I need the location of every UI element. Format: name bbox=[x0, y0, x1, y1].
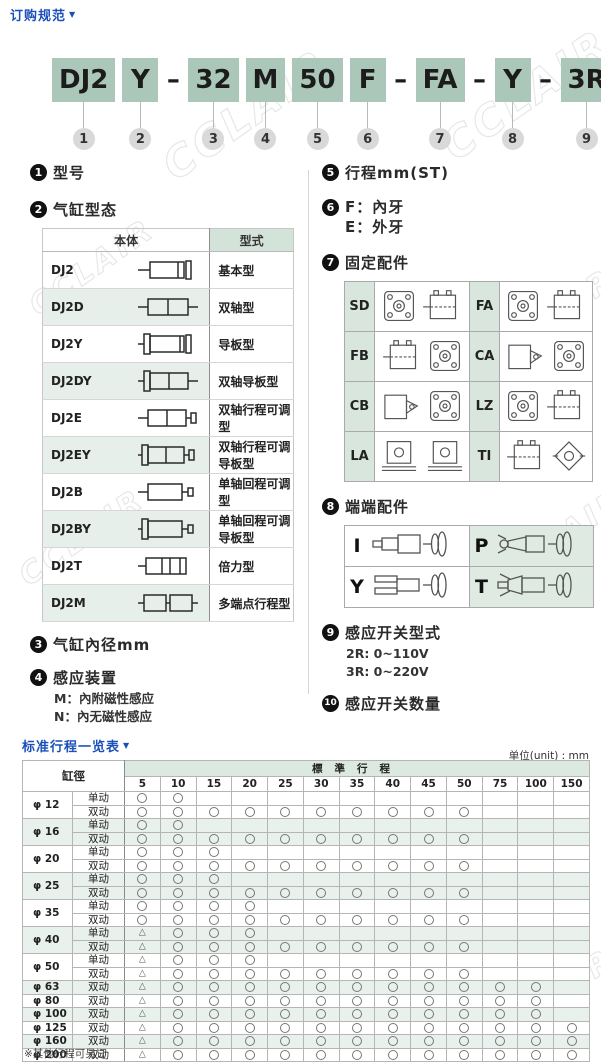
section-4-sensor-device: 4 感应装置 bbox=[30, 667, 304, 688]
stroke-availability-cell bbox=[160, 886, 196, 900]
stroke-availability-cell bbox=[268, 967, 304, 981]
stroke-availability-cell bbox=[411, 1008, 447, 1022]
segment-connector-line bbox=[317, 102, 318, 128]
type-table-row: DJ2T倍力型 bbox=[43, 548, 294, 585]
segment-number-circle: 8 bbox=[502, 128, 524, 150]
stroke-column-header: 20 bbox=[232, 777, 268, 792]
type-table-row: DJ2B单轴回程可调型 bbox=[43, 474, 294, 511]
stroke-availability-cell bbox=[518, 1048, 554, 1062]
section-4-badge: 4 bbox=[30, 669, 47, 686]
stroke-availability-cell bbox=[196, 1048, 232, 1062]
rod-end-code: T bbox=[474, 576, 490, 598]
mount-drawing bbox=[375, 331, 470, 381]
stroke-availability-cell bbox=[196, 859, 232, 873]
available-circle-mark bbox=[531, 1009, 541, 1019]
stroke-availability-cell bbox=[303, 994, 339, 1008]
model-code-segment: Y8 bbox=[495, 58, 531, 150]
stroke-availability-cell bbox=[411, 1021, 447, 1035]
stroke-availability-cell bbox=[268, 819, 304, 833]
stroke-table-row: 双动 bbox=[23, 832, 590, 846]
model-code: DJ21Y2–323M4505F6–FA7–Y8–3R9210 bbox=[52, 58, 601, 150]
model-code-segment: Y2 bbox=[122, 58, 158, 150]
available-circle-mark bbox=[173, 861, 183, 871]
stroke-availability-cell bbox=[518, 954, 554, 968]
stroke-availability-cell bbox=[160, 994, 196, 1008]
available-circle-mark bbox=[209, 1009, 219, 1019]
stroke-availability-cell bbox=[446, 967, 482, 981]
action-type-cell: 双动 bbox=[73, 967, 125, 981]
stroke-availability-cell bbox=[303, 954, 339, 968]
stroke-availability-cell bbox=[125, 886, 161, 900]
stroke-column-header: 10 bbox=[160, 777, 196, 792]
available-circle-mark bbox=[173, 807, 183, 817]
switch-type-3r: 3R: 0~220V bbox=[346, 663, 594, 681]
stroke-availability-cell bbox=[160, 1035, 196, 1049]
cylinder-pictogram-icon bbox=[126, 363, 210, 400]
available-circle-mark bbox=[209, 915, 219, 925]
rod-end-code: Y bbox=[349, 576, 365, 598]
available-circle-mark bbox=[424, 982, 434, 992]
stroke-availability-cell bbox=[268, 927, 304, 941]
available-circle-mark bbox=[424, 888, 434, 898]
rod-end-item: P bbox=[474, 529, 590, 563]
mounting-grid-row: FBCA bbox=[345, 331, 593, 381]
stroke-availability-cell bbox=[554, 1021, 590, 1035]
stroke-availability-cell bbox=[518, 927, 554, 941]
stroke-availability-cell bbox=[125, 900, 161, 914]
stroke-availability-cell bbox=[196, 1008, 232, 1022]
mount-code-label: LA bbox=[345, 431, 375, 481]
rod-end-drawing bbox=[371, 570, 455, 604]
available-circle-mark bbox=[245, 901, 255, 911]
stroke-availability-cell bbox=[339, 1008, 375, 1022]
stroke-availability-cell bbox=[232, 792, 268, 806]
available-circle-mark bbox=[280, 888, 290, 898]
rod-end-item: T bbox=[474, 570, 590, 604]
action-type-cell: 单动 bbox=[73, 954, 125, 968]
stroke-table-row: φ 100双动△ bbox=[23, 1008, 590, 1022]
type-table-row: DJ2DY双轴导板型 bbox=[43, 363, 294, 400]
cylinder-pictogram-icon bbox=[126, 252, 210, 289]
section-8-rod-end: 8 端端配件 bbox=[322, 496, 594, 517]
available-circle-mark bbox=[495, 996, 505, 1006]
available-circle-mark bbox=[173, 1023, 183, 1033]
stroke-availability-cell bbox=[303, 940, 339, 954]
available-circle-mark bbox=[280, 807, 290, 817]
stroke-availability-cell bbox=[446, 832, 482, 846]
stroke-availability-cell bbox=[446, 805, 482, 819]
stroke-availability-cell bbox=[339, 819, 375, 833]
stroke-availability-cell: △ bbox=[125, 927, 161, 941]
model-code-box: Y bbox=[122, 58, 158, 102]
stroke-availability-cell bbox=[411, 1048, 447, 1062]
optional-triangle-mark: △ bbox=[139, 968, 146, 978]
available-circle-mark bbox=[531, 1036, 541, 1046]
stroke-availability-cell bbox=[232, 981, 268, 995]
stroke-availability-cell bbox=[554, 913, 590, 927]
available-circle-mark bbox=[280, 969, 290, 979]
available-circle-mark bbox=[173, 928, 183, 938]
stroke-availability-cell bbox=[196, 805, 232, 819]
available-circle-mark bbox=[424, 1050, 434, 1060]
available-circle-mark bbox=[137, 820, 147, 830]
stroke-availability-cell bbox=[482, 846, 518, 860]
rod-end-item: I bbox=[349, 529, 465, 563]
action-type-cell: 双动 bbox=[73, 1008, 125, 1022]
stroke-availability-cell bbox=[160, 846, 196, 860]
stroke-availability-cell bbox=[339, 873, 375, 887]
mount-code-label: LZ bbox=[470, 381, 500, 431]
optional-triangle-mark: △ bbox=[139, 1036, 146, 1046]
stroke-table-row: φ 125双动△ bbox=[23, 1021, 590, 1035]
stroke-availability-cell bbox=[375, 1021, 411, 1035]
stroke-availability-cell bbox=[303, 792, 339, 806]
stroke-availability-cell bbox=[518, 994, 554, 1008]
stroke-availability-cell bbox=[303, 805, 339, 819]
stroke-availability-cell bbox=[160, 927, 196, 941]
stroke-availability-cell bbox=[554, 873, 590, 887]
stroke-availability-cell bbox=[196, 900, 232, 914]
stroke-availability-cell bbox=[518, 792, 554, 806]
stroke-availability-cell bbox=[411, 900, 447, 914]
action-type-cell: 双动 bbox=[73, 940, 125, 954]
stroke-availability-cell bbox=[232, 832, 268, 846]
available-circle-mark bbox=[280, 1009, 290, 1019]
model-code-box: Y bbox=[495, 58, 531, 102]
cylinder-code: DJ2Y bbox=[43, 326, 127, 363]
type-table-row: DJ2BY单轴回程可调导板型 bbox=[43, 511, 294, 548]
rod-end-grid: IPYT bbox=[344, 525, 594, 608]
available-circle-mark bbox=[316, 915, 326, 925]
stroke-availability-cell bbox=[125, 819, 161, 833]
stroke-availability-cell bbox=[446, 1048, 482, 1062]
stroke-availability-cell bbox=[482, 1048, 518, 1062]
stroke-availability-cell bbox=[196, 994, 232, 1008]
section-3-bore: 3 气缸內径mm bbox=[30, 634, 304, 655]
stroke-availability-cell bbox=[196, 819, 232, 833]
section-9-badge: 9 bbox=[322, 624, 339, 641]
available-circle-mark bbox=[209, 942, 219, 952]
available-circle-mark bbox=[388, 996, 398, 1006]
type-table-row: DJ2E双轴行程可调型 bbox=[43, 400, 294, 437]
stroke-table-row: 双动 bbox=[23, 805, 590, 819]
stroke-availability-cell bbox=[160, 805, 196, 819]
action-type-cell: 双动 bbox=[73, 994, 125, 1008]
mount-drawing bbox=[375, 431, 470, 481]
ordering-spec-page: CCLAIR CCLAIR CCLAIR CCLAIR CCLAIR CCLAI… bbox=[0, 0, 601, 1064]
cylinder-pictogram-icon bbox=[126, 400, 210, 437]
available-circle-mark bbox=[280, 1036, 290, 1046]
stroke-availability-cell bbox=[232, 846, 268, 860]
cylinder-code: DJ2DY bbox=[43, 363, 127, 400]
available-circle-mark bbox=[352, 996, 362, 1006]
available-circle-mark bbox=[173, 834, 183, 844]
bore-size-cell: φ 100 bbox=[23, 1008, 73, 1022]
stroke-availability-cell bbox=[268, 886, 304, 900]
cylinder-code: DJ2M bbox=[43, 585, 127, 622]
stroke-availability-cell bbox=[339, 967, 375, 981]
stroke-availability-cell bbox=[196, 832, 232, 846]
segment-connector-line bbox=[367, 102, 368, 128]
available-circle-mark bbox=[245, 982, 255, 992]
available-circle-mark bbox=[388, 1009, 398, 1019]
stroke-availability-cell bbox=[518, 1035, 554, 1049]
cylinder-pictogram-icon bbox=[126, 585, 210, 622]
stroke-availability-cell bbox=[446, 846, 482, 860]
mount-drawing bbox=[375, 281, 470, 331]
available-circle-mark bbox=[173, 888, 183, 898]
stroke-availability-cell bbox=[303, 1035, 339, 1049]
stroke-availability-cell bbox=[554, 1035, 590, 1049]
sensor-option-n: N：內无磁性感应 bbox=[54, 708, 304, 726]
stroke-availability-cell bbox=[303, 846, 339, 860]
available-circle-mark bbox=[137, 861, 147, 871]
available-circle-mark bbox=[245, 834, 255, 844]
stroke-availability-cell bbox=[303, 1048, 339, 1062]
available-circle-mark bbox=[388, 982, 398, 992]
segment-connector-line bbox=[265, 102, 266, 128]
stroke-availability-cell bbox=[375, 1035, 411, 1049]
model-code-box: F bbox=[350, 58, 386, 102]
bore-size-cell: φ 20 bbox=[23, 846, 73, 873]
mount-code-label: FB bbox=[345, 331, 375, 381]
stroke-availability-cell bbox=[339, 832, 375, 846]
action-type-cell: 双动 bbox=[73, 832, 125, 846]
stroke-availability-cell bbox=[554, 1008, 590, 1022]
stroke-availability-cell bbox=[518, 900, 554, 914]
stroke-table-row: φ 35单动 bbox=[23, 900, 590, 914]
stroke-availability-cell bbox=[518, 819, 554, 833]
stroke-table-title[interactable]: 标准行程一览表 ▼ bbox=[22, 736, 130, 755]
available-circle-mark bbox=[245, 996, 255, 1006]
stroke-availability-cell bbox=[375, 873, 411, 887]
stroke-availability-cell bbox=[232, 1035, 268, 1049]
cylinder-type-name: 多端点行程型 bbox=[210, 585, 294, 622]
cylinder-code: DJ2B bbox=[43, 474, 127, 511]
mount-drawing bbox=[500, 281, 593, 331]
segment-number-circle: 7 bbox=[429, 128, 451, 150]
stroke-table-row: φ 200双动△ bbox=[23, 1048, 590, 1062]
stroke-availability-cell bbox=[375, 927, 411, 941]
stroke-availability-cell bbox=[375, 886, 411, 900]
available-circle-mark bbox=[173, 955, 183, 965]
available-circle-mark bbox=[388, 942, 398, 952]
stroke-availability-cell bbox=[268, 981, 304, 995]
available-circle-mark bbox=[352, 861, 362, 871]
available-circle-mark bbox=[316, 834, 326, 844]
mount-code-label: CB bbox=[345, 381, 375, 431]
stroke-availability-cell bbox=[482, 1008, 518, 1022]
stroke-availability-cell bbox=[518, 886, 554, 900]
stroke-availability-cell bbox=[232, 819, 268, 833]
available-circle-mark bbox=[209, 955, 219, 965]
stroke-availability-cell bbox=[518, 1008, 554, 1022]
stroke-availability-cell bbox=[446, 981, 482, 995]
stroke-availability-cell bbox=[303, 913, 339, 927]
available-circle-mark bbox=[245, 1036, 255, 1046]
optional-triangle-mark: △ bbox=[139, 928, 146, 938]
stroke-column-header: 150 bbox=[554, 777, 590, 792]
stroke-availability-cell bbox=[196, 1021, 232, 1035]
available-circle-mark bbox=[280, 996, 290, 1006]
available-circle-mark bbox=[209, 1050, 219, 1060]
stroke-availability-cell: △ bbox=[125, 1048, 161, 1062]
rod-end-item: Y bbox=[349, 570, 465, 604]
stroke-availability-cell bbox=[196, 886, 232, 900]
stroke-table-row: φ 12单动 bbox=[23, 792, 590, 806]
stroke-availability-cell bbox=[268, 913, 304, 927]
segment-number-circle: 9 bbox=[576, 128, 598, 150]
cylinder-type-name: 倍力型 bbox=[210, 548, 294, 585]
available-circle-mark bbox=[459, 888, 469, 898]
available-circle-mark bbox=[245, 1050, 255, 1060]
available-circle-mark bbox=[316, 1036, 326, 1046]
model-code-dash: – bbox=[165, 58, 181, 102]
stroke-availability-cell bbox=[411, 873, 447, 887]
stroke-availability-cell bbox=[518, 967, 554, 981]
stroke-availability-cell bbox=[554, 805, 590, 819]
available-circle-mark bbox=[245, 861, 255, 871]
stroke-availability-cell bbox=[375, 832, 411, 846]
stroke-availability-cell bbox=[375, 954, 411, 968]
segment-number-circle: 2 bbox=[129, 128, 151, 150]
mount-code-label: CA bbox=[470, 331, 500, 381]
available-circle-mark bbox=[531, 1050, 541, 1060]
stroke-availability-cell bbox=[268, 846, 304, 860]
stroke-availability-cell bbox=[125, 873, 161, 887]
stroke-availability-cell bbox=[303, 1021, 339, 1035]
stroke-availability-cell bbox=[339, 913, 375, 927]
stroke-availability-cell bbox=[303, 886, 339, 900]
rod-end-drawing bbox=[496, 529, 580, 563]
bore-size-cell: φ 40 bbox=[23, 927, 73, 954]
available-circle-mark bbox=[459, 1009, 469, 1019]
stroke-availability-cell bbox=[554, 940, 590, 954]
stroke-availability-cell bbox=[375, 900, 411, 914]
available-circle-mark bbox=[352, 1023, 362, 1033]
stroke-availability-cell bbox=[196, 913, 232, 927]
stroke-availability-cell: △ bbox=[125, 981, 161, 995]
stroke-column-header: 30 bbox=[303, 777, 339, 792]
stroke-availability-cell bbox=[375, 967, 411, 981]
stroke-availability-cell bbox=[446, 954, 482, 968]
available-circle-mark bbox=[424, 969, 434, 979]
available-circle-mark bbox=[209, 807, 219, 817]
available-circle-mark bbox=[388, 915, 398, 925]
available-circle-mark bbox=[459, 1023, 469, 1033]
available-circle-mark bbox=[316, 888, 326, 898]
stroke-availability-cell bbox=[482, 967, 518, 981]
available-circle-mark bbox=[137, 847, 147, 857]
stroke-availability-cell bbox=[232, 940, 268, 954]
stroke-availability-cell bbox=[446, 1008, 482, 1022]
available-circle-mark bbox=[316, 861, 326, 871]
chevron-down-icon: ▼ bbox=[69, 10, 76, 19]
available-circle-mark bbox=[280, 1050, 290, 1060]
section-6-thread: 6 F：內牙 E：外牙 bbox=[322, 197, 594, 238]
stroke-availability-cell bbox=[482, 1021, 518, 1035]
stroke-band-header: 標準行程 bbox=[125, 761, 590, 777]
stroke-availability-cell bbox=[232, 859, 268, 873]
stroke-availability-cell bbox=[554, 981, 590, 995]
stroke-availability-cell bbox=[375, 994, 411, 1008]
stroke-table-row: φ 40单动△ bbox=[23, 927, 590, 941]
stroke-availability-cell bbox=[339, 1048, 375, 1062]
model-code-box: M bbox=[246, 58, 286, 102]
stroke-table-row: φ 50单动△ bbox=[23, 954, 590, 968]
stroke-availability-cell bbox=[232, 927, 268, 941]
stroke-availability-cell bbox=[160, 940, 196, 954]
stroke-availability-cell bbox=[268, 1048, 304, 1062]
segment-connector-line bbox=[213, 102, 214, 128]
mounting-grid-row: LATI bbox=[345, 431, 593, 481]
available-circle-mark bbox=[424, 915, 434, 925]
available-circle-mark bbox=[567, 1023, 577, 1033]
stroke-column-header: 15 bbox=[196, 777, 232, 792]
available-circle-mark bbox=[459, 861, 469, 871]
stroke-availability-cell bbox=[554, 927, 590, 941]
available-circle-mark bbox=[245, 915, 255, 925]
available-circle-mark bbox=[280, 915, 290, 925]
stroke-availability-cell bbox=[196, 846, 232, 860]
stroke-availability-cell bbox=[196, 940, 232, 954]
sensor-option-m: M：內附磁性感应 bbox=[54, 690, 304, 708]
mounting-grid: SDFAFBCACBLZLATI bbox=[344, 281, 593, 482]
stroke-availability-cell bbox=[339, 1021, 375, 1035]
action-type-cell: 单动 bbox=[73, 819, 125, 833]
optional-triangle-mark: △ bbox=[139, 1022, 146, 1032]
stroke-column-header: 45 bbox=[411, 777, 447, 792]
cylinder-type-name: 双轴行程可调导板型 bbox=[210, 437, 294, 474]
stroke-availability-cell: △ bbox=[125, 940, 161, 954]
available-circle-mark bbox=[459, 969, 469, 979]
stroke-table-row: φ 63双动△ bbox=[23, 981, 590, 995]
available-circle-mark bbox=[459, 982, 469, 992]
stroke-availability-cell bbox=[411, 994, 447, 1008]
stroke-availability-cell bbox=[232, 1008, 268, 1022]
available-circle-mark bbox=[388, 969, 398, 979]
bore-size-cell: φ 50 bbox=[23, 954, 73, 981]
stroke-availability-cell bbox=[411, 981, 447, 995]
optional-triangle-mark: △ bbox=[139, 982, 146, 992]
action-type-cell: 双动 bbox=[73, 913, 125, 927]
stroke-availability-cell bbox=[339, 927, 375, 941]
model-code-box: 50 bbox=[292, 58, 342, 102]
stroke-availability-cell bbox=[303, 819, 339, 833]
stroke-availability-cell bbox=[268, 940, 304, 954]
stroke-availability-cell bbox=[554, 886, 590, 900]
model-code-box: FA bbox=[416, 58, 465, 102]
stroke-availability-cell bbox=[160, 1008, 196, 1022]
available-circle-mark bbox=[173, 996, 183, 1006]
stroke-availability-cell bbox=[554, 819, 590, 833]
available-circle-mark bbox=[459, 942, 469, 952]
rod-end-code: I bbox=[349, 535, 365, 557]
stroke-availability-cell bbox=[554, 954, 590, 968]
stroke-availability-cell bbox=[446, 1021, 482, 1035]
available-circle-mark bbox=[245, 969, 255, 979]
stroke-availability-cell bbox=[268, 805, 304, 819]
stroke-availability-cell bbox=[375, 981, 411, 995]
stroke-availability-cell bbox=[232, 967, 268, 981]
page-title[interactable]: 订购规范 ▼ bbox=[10, 5, 76, 24]
stroke-availability-cell bbox=[375, 805, 411, 819]
available-circle-mark bbox=[388, 1023, 398, 1033]
page-title-text: 订购规范 bbox=[10, 5, 66, 24]
cylinder-type-name: 基本型 bbox=[210, 252, 294, 289]
model-code-segment: F6 bbox=[350, 58, 386, 150]
available-circle-mark bbox=[352, 1009, 362, 1019]
